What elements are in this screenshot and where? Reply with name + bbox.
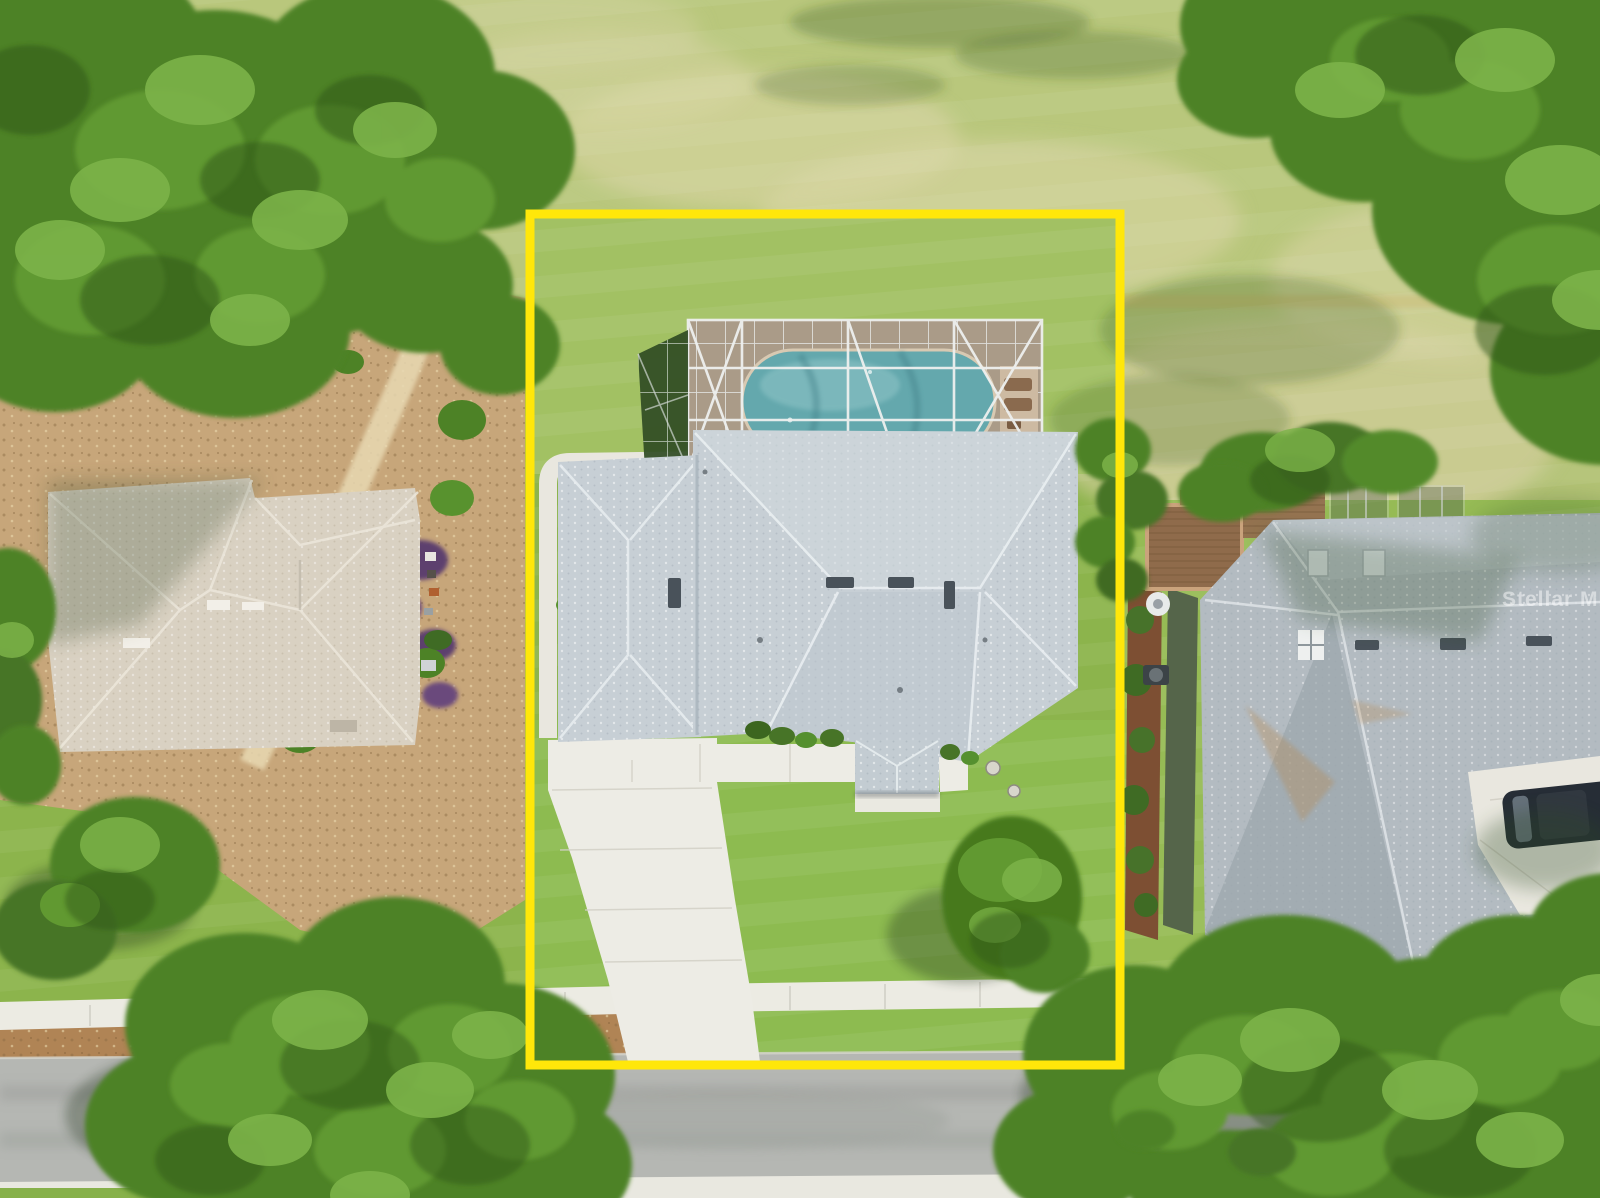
garage-roof — [558, 455, 701, 742]
roof-vent — [1355, 640, 1379, 650]
right-house-wall — [1163, 588, 1198, 935]
main-roof — [693, 430, 1078, 762]
stellar-mls-watermark: Stellar MLS — [1502, 588, 1600, 611]
roof-vent — [826, 577, 854, 588]
aerial-photo-canvas: Stellar MLS — [0, 0, 1600, 1198]
left-house-roof-vent — [123, 638, 150, 648]
right-mulch-bed — [1125, 588, 1162, 940]
entry-portico — [855, 740, 939, 797]
aerial-photo: Stellar MLS — [0, 0, 1600, 1198]
left-house-ac-unit — [421, 660, 436, 671]
roof-vent — [668, 578, 681, 608]
screened-garden — [638, 330, 688, 470]
left-neighbor-house — [48, 478, 452, 752]
tree-canopy-top-left — [0, 0, 575, 418]
